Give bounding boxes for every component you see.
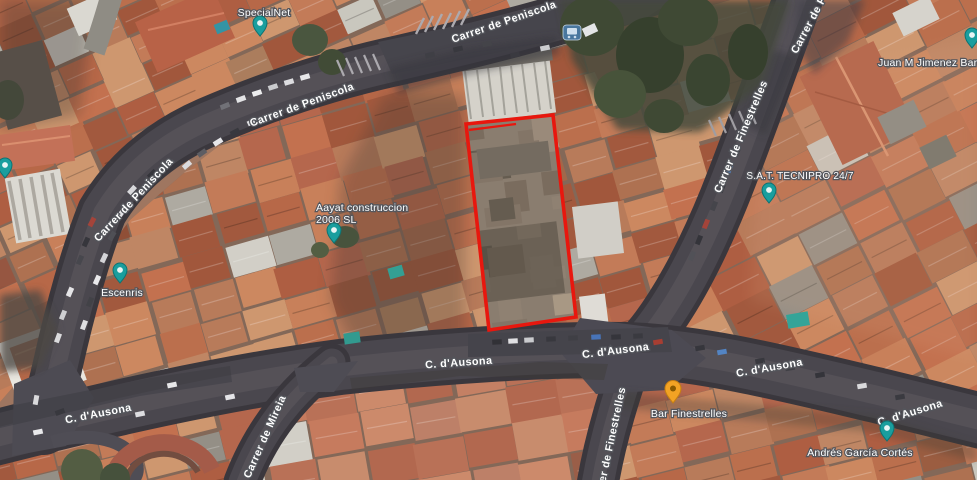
svg-text:Andrés García Cortés: Andrés García Cortés bbox=[807, 447, 913, 459]
svg-text:Aayat construccion: Aayat construccion bbox=[316, 202, 408, 214]
svg-text:Escenris: Escenris bbox=[101, 287, 143, 299]
svg-text:Bar Finestrelles: Bar Finestrelles bbox=[651, 408, 727, 420]
svg-text:S.A.T. TECNIPRO 24/7: S.A.T. TECNIPRO 24/7 bbox=[746, 171, 853, 182]
svg-text:Juan M Jimenez Barranco: Juan M Jimenez Barranco bbox=[878, 57, 977, 69]
